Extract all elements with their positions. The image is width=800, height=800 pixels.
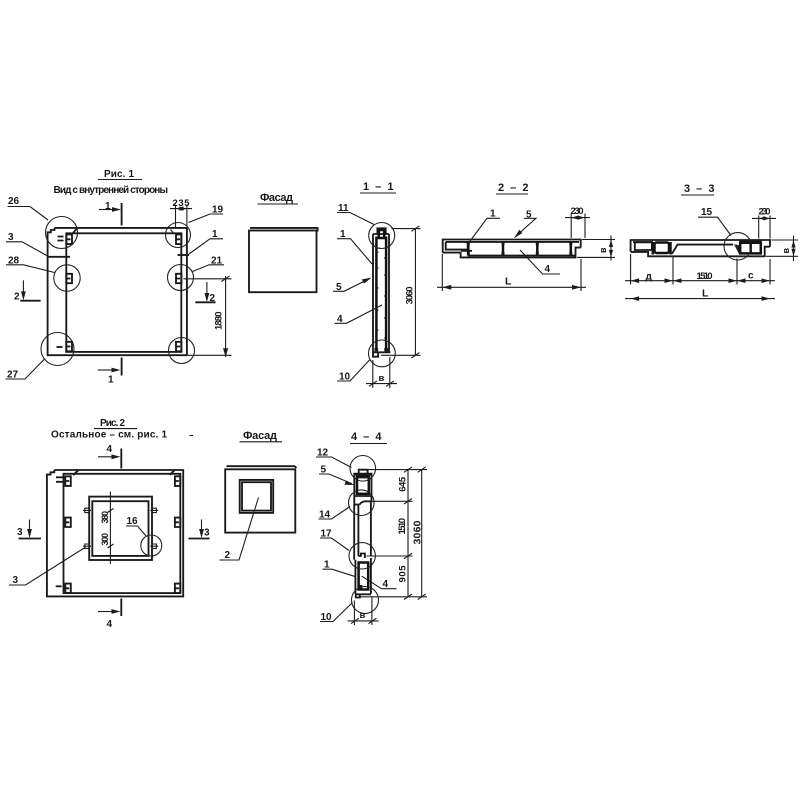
- svg-text:4: 4: [107, 444, 113, 455]
- svg-text:26: 26: [8, 196, 20, 207]
- svg-text:д: д: [646, 272, 653, 283]
- svg-text:1510: 1510: [697, 271, 713, 282]
- svg-text:1: 1: [105, 201, 111, 212]
- svg-text:3060: 3060: [412, 520, 424, 544]
- svg-text:3: 3: [17, 527, 23, 538]
- svg-text:в: в: [598, 247, 608, 253]
- svg-text:905: 905: [398, 565, 409, 583]
- svg-text:300: 300: [100, 533, 110, 546]
- svg-text:645: 645: [398, 476, 409, 492]
- svg-text:4: 4: [545, 264, 551, 275]
- svg-text:4 – 4: 4 – 4: [351, 431, 383, 443]
- svg-text:3: 3: [13, 575, 19, 586]
- svg-text:1: 1: [108, 375, 114, 386]
- svg-text:в: в: [379, 373, 385, 384]
- svg-text:Фасад: Фасад: [243, 430, 277, 442]
- svg-text:L: L: [505, 276, 512, 288]
- svg-text:380: 380: [100, 511, 110, 524]
- svg-text:3: 3: [204, 528, 210, 539]
- svg-text:в: в: [781, 248, 791, 254]
- svg-text:1 – 1: 1 – 1: [363, 181, 395, 193]
- svg-text:с: с: [748, 271, 754, 282]
- svg-text:Рис. 2: Рис. 2: [100, 418, 125, 429]
- svg-text:Остальное – см. рис. 1: Остальное – см. рис. 1: [51, 430, 167, 441]
- svg-text:230: 230: [759, 207, 771, 218]
- svg-text:2: 2: [14, 292, 20, 303]
- svg-text:2 – 2: 2 – 2: [498, 182, 530, 194]
- svg-text:230: 230: [571, 206, 584, 217]
- svg-text:1880: 1880: [214, 312, 225, 331]
- svg-text:16: 16: [127, 516, 139, 527]
- svg-text:Вид с внутренней стороны: Вид с внутренней стороны: [54, 185, 169, 196]
- svg-text:15: 15: [701, 207, 713, 218]
- svg-text:3 – 3: 3 – 3: [684, 183, 716, 195]
- svg-text:1510: 1510: [397, 518, 408, 535]
- svg-text:L: L: [702, 288, 709, 300]
- svg-text:3060: 3060: [405, 287, 416, 305]
- svg-text:Рис. 1: Рис. 1: [104, 169, 134, 180]
- svg-text:Фасад: Фасад: [260, 192, 293, 204]
- svg-text:4: 4: [107, 619, 113, 630]
- svg-text:в: в: [360, 610, 366, 621]
- svg-text:2: 2: [225, 550, 231, 561]
